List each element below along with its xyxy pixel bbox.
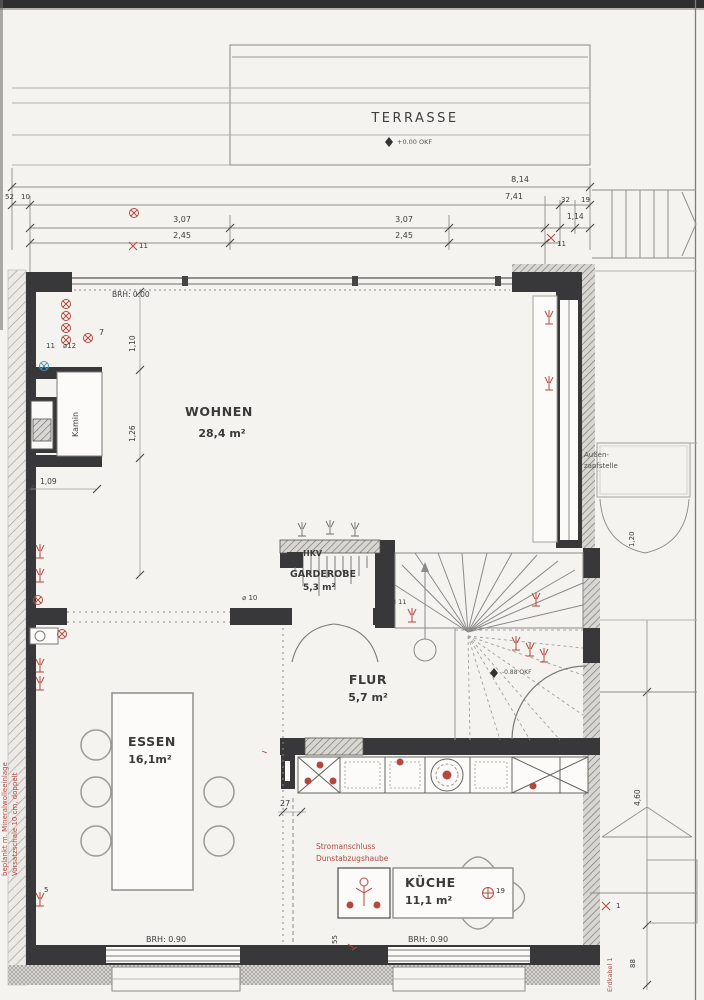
room-label-essen: ESSEN: [102, 736, 202, 749]
level-marker-stair: [490, 668, 498, 678]
double-door: [292, 624, 378, 662]
terrace-decking: [12, 45, 590, 165]
hkv-box: [287, 552, 303, 567]
duct-slot: [285, 761, 290, 781]
level-stair: -0.88 OKF: [502, 670, 532, 676]
room-label-flur: FLUR: [338, 674, 398, 687]
floor-plan: TERRASSE +0.00 OKF 8,14 7,41 52 10 3,07 …: [0, 0, 704, 1000]
sill-kueche: BRH: 0.90: [408, 936, 448, 944]
room-area-garderobe: 5,3 m²: [303, 584, 335, 593]
dim-55: 55: [332, 935, 339, 944]
room-label-kueche: KÜCHE: [405, 877, 456, 890]
glass-front: [72, 276, 512, 290]
fireplace: [27, 372, 102, 456]
room-label-hkv: HKV: [303, 550, 322, 558]
dim-19: 19: [581, 197, 590, 204]
mark-11-left: 11: [139, 243, 148, 250]
sill-wohnen: BRH: 0.00: [112, 291, 150, 299]
mark-12: ⌀12: [63, 343, 76, 350]
site-lines-right: [590, 271, 697, 923]
note-erdkabel: Erdkabel 1: [607, 957, 614, 992]
dim-v110: 1,10: [129, 335, 137, 352]
room-area-kueche: 11,1 m²: [405, 895, 452, 906]
dim-right-a: 3,07: [384, 216, 424, 224]
note-aussen-1: Außen-: [584, 452, 609, 459]
room-label-terrasse: TERRASSE: [355, 112, 475, 125]
mark-311: 3 11: [392, 599, 406, 606]
dim-52: 52: [5, 194, 14, 201]
staircase: [395, 553, 586, 740]
mark-11: 11: [46, 343, 55, 350]
dim-120: 1,20: [629, 531, 636, 547]
mark-11-right: 11: [557, 241, 566, 248]
level-terrasse: +0.00 OKF: [397, 139, 432, 146]
sill-essen: BRH: 0.90: [146, 936, 186, 944]
dim-inner: 7,41: [494, 193, 534, 201]
room-label-kamin: Kamin: [72, 412, 80, 437]
mark-19: 19: [496, 888, 505, 895]
exterior-stairs: [592, 190, 696, 258]
mark-phi10: ⌀ 10: [242, 595, 257, 602]
right-window-reveal: [533, 296, 557, 542]
dining-set: [81, 693, 234, 890]
dim-32: 32: [561, 197, 570, 204]
dim-right-b: 2,45: [384, 232, 424, 240]
note-aussen-2: zapfstelle: [584, 463, 618, 470]
dim-27: 27: [280, 800, 290, 808]
note-strom-1: Stromanschluss: [316, 843, 375, 851]
dim-460: 4,60: [634, 789, 642, 806]
wall-niche: [30, 628, 58, 644]
mark-7: 7: [99, 329, 104, 337]
note-strom-2: Dunstabzugshaube: [316, 855, 388, 863]
room-label-wohnen: WOHNEN: [159, 406, 279, 419]
dim-entry: 1,14: [567, 213, 584, 221]
room-area-essen: 16,1m²: [100, 754, 200, 765]
room-label-garderobe: GARDEROBE: [290, 570, 356, 580]
room-area-flur: 5,7 m²: [338, 692, 398, 703]
dim-left-b: 2,45: [162, 232, 202, 240]
dim-left-a: 3,07: [162, 216, 202, 224]
note-vorsatz-1: Vorsatzschale 10 cm, doppelt: [12, 773, 19, 876]
dim-88: 88: [630, 959, 637, 968]
dim-kamin: 1,09: [40, 478, 57, 486]
dim-total: 8,14: [500, 176, 540, 184]
mark-1: 1: [616, 903, 620, 910]
room-area-wohnen: 28,4 m²: [162, 428, 282, 439]
level-marker-terrace: [385, 137, 393, 147]
note-vorsatz-2: beplankt m. Mineralwolleeinlage: [2, 762, 9, 876]
mark-5: 5: [44, 887, 48, 894]
existing-wall-segment: [305, 738, 363, 755]
dim-v126: 1,26: [129, 425, 137, 442]
garderobe-wall: [280, 540, 380, 553]
dim-10: 10: [21, 194, 30, 201]
